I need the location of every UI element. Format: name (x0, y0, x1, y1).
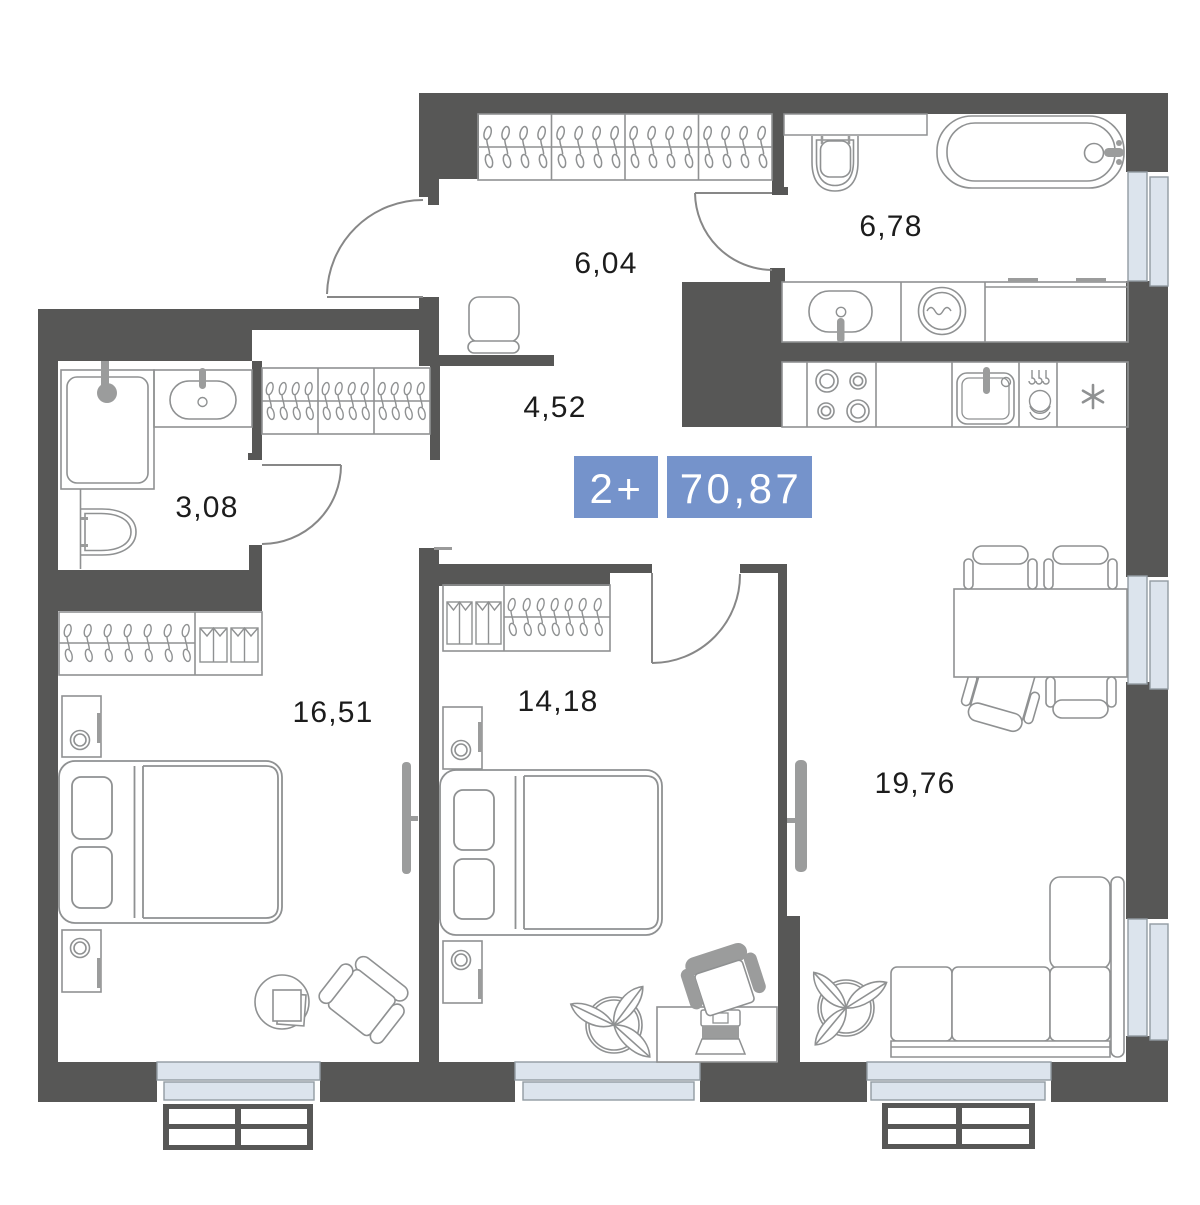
svg-text:14,18: 14,18 (517, 685, 598, 718)
svg-text:3,08: 3,08 (175, 491, 238, 524)
svg-text:2+: 2+ (590, 465, 645, 512)
svg-text:4,52: 4,52 (523, 391, 586, 424)
svg-text:19,76: 19,76 (874, 767, 955, 800)
svg-text:16,51: 16,51 (292, 696, 373, 729)
svg-text:6,78: 6,78 (859, 210, 922, 243)
svg-text:70,87: 70,87 (680, 465, 803, 512)
svg-text:6,04: 6,04 (574, 247, 637, 280)
